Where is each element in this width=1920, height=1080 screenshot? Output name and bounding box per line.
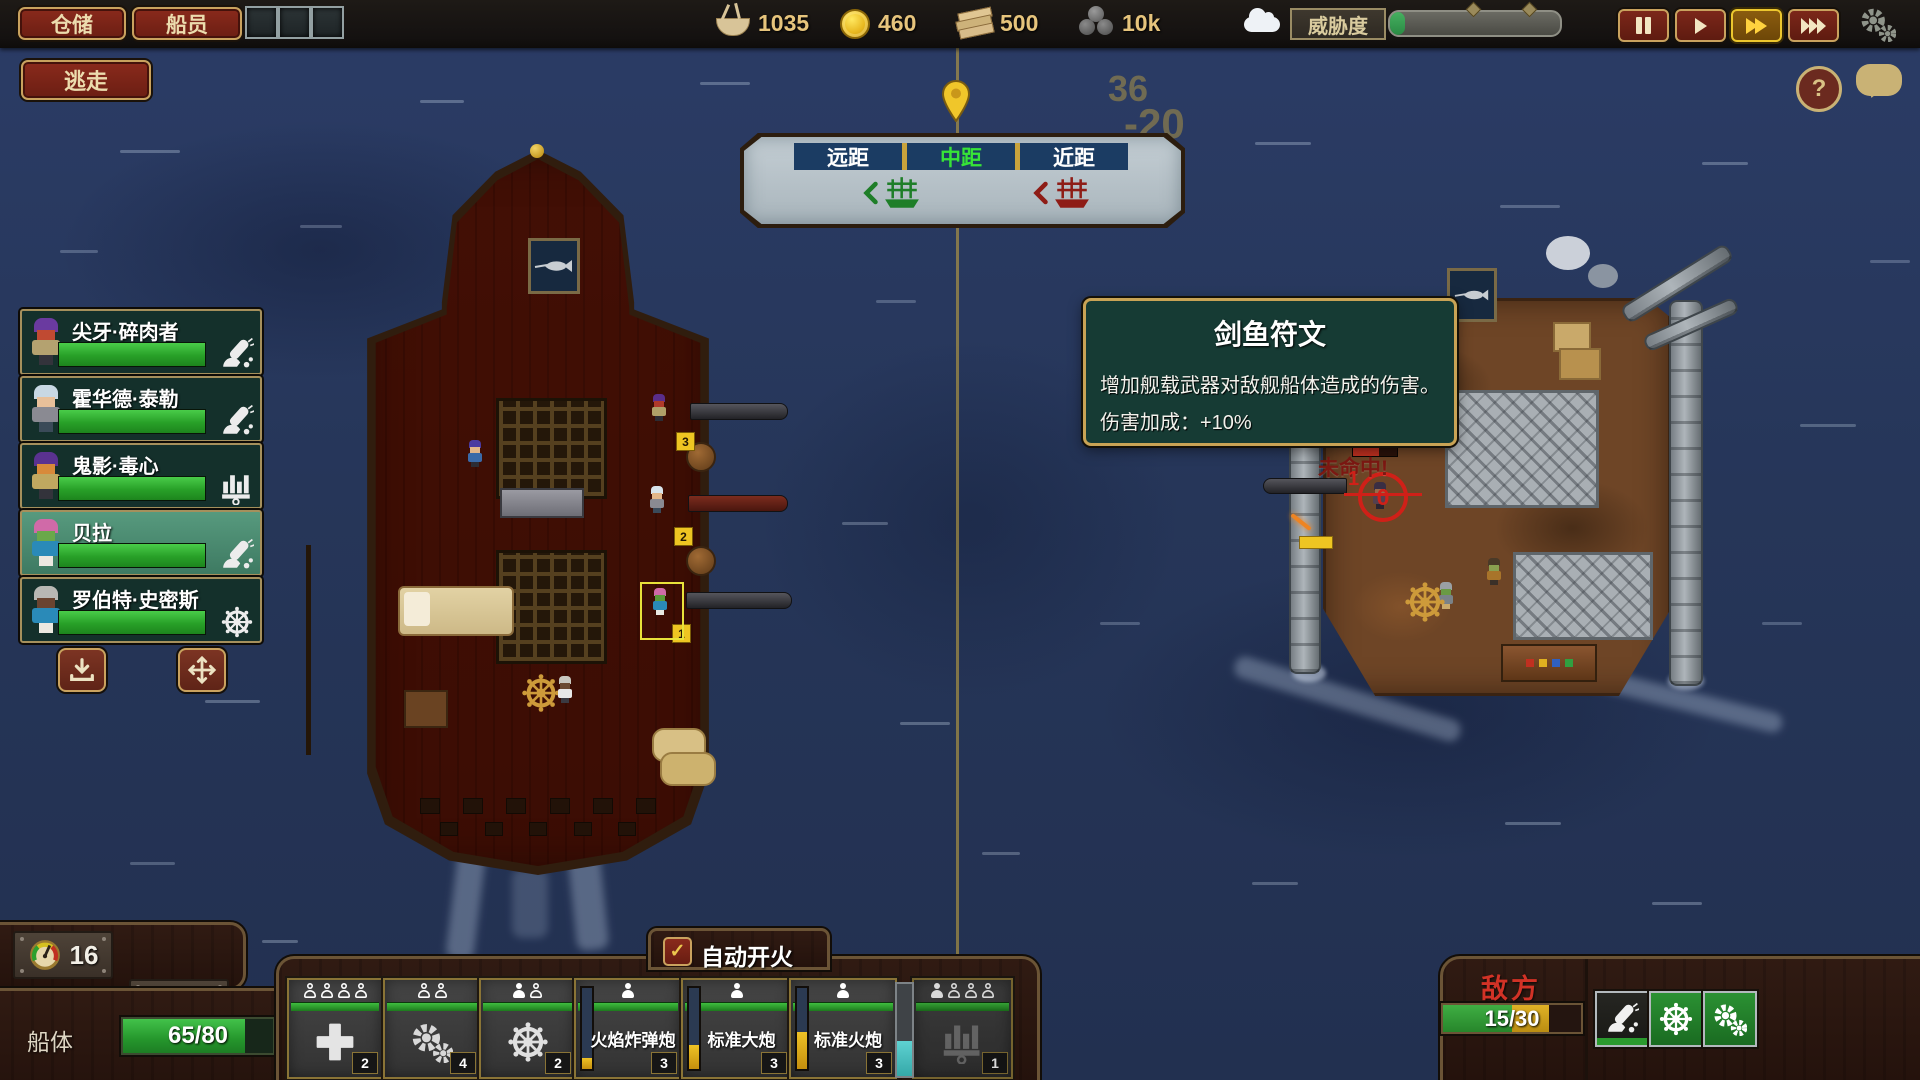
cannon-role-icon: [220, 538, 254, 572]
crew-button[interactable]: 船员: [132, 7, 242, 40]
enemy-hp-bar: 15/30: [1441, 1003, 1583, 1034]
barrel: [686, 546, 716, 576]
crew-empty-icon: [417, 983, 430, 999]
auto-fire-label: 自动开火: [701, 938, 793, 972]
move-crew-button[interactable]: [178, 648, 226, 692]
player-ship-marker: [862, 177, 921, 209]
weather-cloud-icon: [1244, 17, 1280, 32]
bed-pillow: [404, 592, 430, 626]
crew-name: 贝拉: [72, 517, 112, 546]
station-slot-helm[interactable]: 2: [479, 978, 576, 1079]
quick-slot[interactable]: [245, 6, 278, 39]
gears-icon: [411, 1021, 453, 1063]
crew-empty-icon: [434, 983, 447, 999]
crew-card[interactable]: 鬼影·毒心: [20, 443, 262, 509]
settings-gear-icon[interactable]: [1860, 6, 1896, 42]
wave-decoration: [1252, 882, 1298, 885]
wave-decoration: [1702, 162, 1748, 165]
cannon-barrel: [686, 592, 792, 609]
threat-label: 威胁度: [1290, 8, 1386, 40]
sandbag-pile: [660, 752, 716, 786]
enemy-crew-sprite: [1485, 558, 1503, 585]
crew-empty-icon: [948, 983, 961, 999]
weapon-name: 标准火炮: [801, 1026, 895, 1051]
wave-decoration: [120, 150, 180, 153]
enemy-ship-marker: [1032, 177, 1091, 209]
wave-decoration: [1100, 622, 1140, 625]
tooltip-bonus: 伤害加成：+10%: [1100, 406, 1440, 435]
crew-empty-icon: [982, 983, 995, 999]
crew-empty-icon: [320, 983, 333, 999]
crew-label: 船员: [166, 9, 208, 39]
quick-slot[interactable]: [311, 6, 344, 39]
helm-role-icon: [220, 605, 254, 639]
stern-windows: [440, 822, 636, 836]
game-screen: 36 -20: [0, 0, 1920, 1080]
speed-value: 16: [70, 940, 99, 971]
wave-decoration: [700, 82, 750, 85]
panel-divider: [1585, 959, 1588, 1080]
speed-plaque: 16: [13, 931, 113, 979]
station-badge: 3: [651, 1052, 677, 1074]
crew-name: 罗伯特·史密斯: [72, 584, 199, 613]
wave-decoration: [1762, 622, 1802, 625]
weapon-slot-organ-gun-disabled[interactable]: 1: [912, 978, 1013, 1079]
crew-empty-icon: [354, 983, 367, 999]
wave-decoration: [1800, 424, 1856, 427]
crate: [404, 690, 448, 728]
crew-hp-fill: [59, 343, 205, 366]
crew-empty-icon: [303, 983, 316, 999]
enemy-helm-status-icon: [1649, 991, 1703, 1047]
food-chopsticks: [734, 3, 741, 19]
cannon-barrel: [690, 403, 788, 420]
crew-empty-icon: [337, 983, 350, 999]
fastest-forward-button[interactable]: [1788, 9, 1839, 42]
quick-slot[interactable]: [278, 6, 311, 39]
escape-label: 逃走: [64, 64, 108, 96]
auto-fire-tab: ✓ 自动开火: [648, 928, 830, 970]
warehouse-label: 仓储: [51, 9, 93, 39]
range-panel: 远距 中距 近距: [740, 133, 1185, 228]
smoke-puff: [1588, 264, 1618, 288]
queue-number: 1: [1348, 468, 1359, 491]
pause-button[interactable]: [1618, 9, 1669, 42]
help-label: ?: [1812, 75, 1827, 103]
station-badge: 1: [982, 1052, 1008, 1074]
crew-hp-fill: [59, 410, 205, 433]
range-panel-inner: 远距 中距 近距: [744, 137, 1181, 224]
rune-tooltip: 剑鱼符文 增加舰载武器对敌舰船体造成的伤害。 伤害加成：+10%: [1083, 298, 1457, 446]
helm-wheel-icon: [506, 1020, 550, 1064]
metal-plate: [1513, 552, 1653, 640]
crew-filled-icon: [837, 983, 850, 999]
crew-filled-icon: [730, 983, 743, 999]
warehouse-button[interactable]: 仓储: [18, 7, 126, 40]
crew-card[interactable]: 霍华德·泰勒: [20, 376, 262, 442]
cannon-number-tag: 2: [674, 527, 693, 546]
wave-decoration: [842, 522, 888, 525]
far-label: 远距: [827, 142, 869, 172]
near-label: 近距: [1053, 142, 1095, 172]
crew-name: 尖牙·碎肉者: [72, 316, 179, 345]
tab-far-range[interactable]: 远距: [794, 143, 902, 170]
move-icon: [187, 655, 217, 685]
charge-fill: [582, 1058, 592, 1069]
enemy-hp-text: 15/30: [1443, 1005, 1581, 1032]
station-hp-bar: [483, 1002, 572, 1011]
enemy-cannon-status-icon: [1595, 991, 1649, 1047]
crew-name: 霍华德·泰勒: [72, 383, 179, 412]
speed-gauge-icon: [28, 938, 62, 972]
wave-decoration: [60, 250, 98, 253]
threat-fill: [1390, 12, 1405, 35]
enemy-pontoon-right: [1669, 300, 1703, 686]
crate: [1559, 348, 1601, 380]
crew-card-selected[interactable]: 贝拉: [20, 510, 262, 576]
station-badge: 2: [545, 1052, 571, 1074]
ammo-fill: [897, 1041, 912, 1076]
crew-name: 鬼影·毒心: [72, 450, 159, 479]
crew-hp-bar: [58, 409, 206, 434]
wave-decoration: [1870, 260, 1910, 263]
hull-label: 船体: [27, 1023, 73, 1057]
crew-slots: [914, 982, 1011, 1000]
crew-filled-icon: [622, 983, 635, 999]
weapon-slot-standard-cannon[interactable]: 标准火炮 3: [789, 978, 897, 1079]
enemy-ship-wheel: [1403, 580, 1447, 629]
station-hp-bar: [916, 1002, 1009, 1011]
crosshair-value: 0: [1377, 484, 1390, 511]
work-table: [500, 488, 584, 518]
cannon-number-tag: 3: [676, 432, 695, 451]
auto-fire-checkbox[interactable]: ✓: [663, 937, 692, 966]
crew-card[interactable]: 尖牙·碎肉者: [20, 309, 262, 375]
wave-decoration: [300, 225, 342, 228]
crew-hp-fill: [59, 477, 205, 500]
station-badge: 3: [866, 1052, 892, 1074]
hull-panel: 船体 65/80: [0, 988, 316, 1080]
stern-windows: [420, 798, 656, 814]
wave-decoration: [130, 862, 175, 865]
metal-plate: [1445, 390, 1599, 508]
smoke-puff: [1546, 236, 1590, 270]
mid-label: 中距: [940, 142, 982, 172]
crew-filled-icon: [931, 983, 944, 999]
crew-sprite: [648, 486, 666, 513]
ammo-gauge: [895, 982, 914, 1078]
enemy-label: 敌方: [1481, 967, 1541, 1006]
crew-slots: [481, 982, 574, 1000]
crew-sprite: [466, 440, 484, 467]
tooltip-title: 剑鱼符文: [1086, 313, 1454, 353]
ship-wake: [512, 868, 548, 938]
chat-bubble-icon[interactable]: [1856, 64, 1902, 96]
selection-box: [640, 582, 684, 640]
recall-crew-button[interactable]: [58, 648, 106, 692]
wave-decoration: [1255, 142, 1311, 145]
crew-card[interactable]: 罗伯特·史密斯: [20, 577, 262, 643]
threat-label-text: 威胁度: [1308, 10, 1368, 39]
cannon-barrel: [688, 495, 788, 512]
escape-button[interactable]: 逃走: [21, 60, 151, 100]
weapon-slot-standard-big-cannon[interactable]: 标准大炮 3: [681, 978, 792, 1079]
organ-gun-role-icon: [220, 471, 254, 505]
weapon-name: 火焰炸弹炮: [586, 1026, 680, 1051]
crew-slots: [385, 982, 479, 1000]
weapon-name: 标准大炮: [693, 1026, 790, 1051]
wave-decoration: [262, 940, 298, 943]
organ-gun-icon: [941, 1020, 985, 1064]
bow-finial: [530, 144, 544, 158]
swordfish-emblem: [528, 238, 580, 294]
cannon-role-icon: [220, 337, 254, 371]
station-badge: 4: [450, 1052, 476, 1074]
enemy-console: [1501, 644, 1597, 682]
crew-sprite: [556, 676, 574, 703]
crew-empty-icon: [965, 983, 978, 999]
station-slot-engine[interactable]: 4: [383, 978, 481, 1079]
crew-hp-bar: [58, 476, 206, 501]
crew-filled-icon: [513, 983, 526, 999]
top-bar: 仓储 船员 1035 460 500 10k 威胁度: [0, 0, 1920, 48]
wave-decoration: [982, 852, 1020, 855]
weapon-slot-flame-bomb-cannon[interactable]: 火焰炸弹炮 3: [574, 978, 682, 1079]
wave-decoration: [420, 100, 464, 103]
wood-icon: [956, 8, 994, 36]
tab-near-range[interactable]: 近距: [1020, 143, 1128, 170]
enemy-engine-status-icon: [1703, 991, 1757, 1047]
repair-cross-icon: [314, 1021, 356, 1063]
coin-icon: [840, 9, 870, 39]
station-hp-bar: [291, 1002, 379, 1011]
crew-hp-bar: [58, 610, 206, 635]
crew-empty-icon: [530, 983, 543, 999]
ammo-chip: [1299, 536, 1333, 549]
wood-value: 500: [1000, 10, 1038, 37]
cannonball-icon: [1078, 6, 1114, 38]
range-tabs: 远距 中距 近距: [794, 143, 1128, 170]
download-icon: [67, 655, 97, 685]
wave-decoration: [1652, 902, 1702, 905]
cannonball-value: 10k: [1122, 10, 1160, 37]
crew-hp-fill: [59, 611, 205, 634]
fast-forward-button[interactable]: [1731, 9, 1782, 42]
crew-hp-fill: [59, 544, 205, 567]
cargo-hatch: [496, 398, 607, 499]
station-slot-repair[interactable]: 2: [287, 978, 383, 1079]
station-badge: 2: [352, 1052, 378, 1074]
help-button[interactable]: ?: [1796, 66, 1842, 112]
food-bowl-icon: [716, 18, 750, 36]
tab-mid-range[interactable]: 中距: [907, 143, 1015, 170]
tooltip-description: 增加舰载武器对敌舰船体造成的伤害。: [1100, 369, 1440, 398]
hull-value: 65/80: [123, 1019, 273, 1053]
station-hp-bar: [387, 1002, 477, 1011]
rigging-pole: [306, 545, 311, 755]
enemy-panel: 敌方 15/30: [1440, 956, 1920, 1080]
wave-decoration: [876, 300, 916, 303]
crew-hp-bar: [58, 342, 206, 367]
crew-sprite: [650, 394, 668, 421]
cannon-role-icon: [220, 404, 254, 438]
crew-slots: [289, 982, 381, 1000]
gauges-panel: 16 22: [0, 922, 246, 990]
hull-bar: 65/80: [121, 1017, 275, 1055]
wave-decoration: [900, 722, 950, 725]
wave-decoration: [1505, 822, 1561, 825]
range-pin-icon: [942, 80, 970, 122]
play-button[interactable]: [1675, 9, 1726, 42]
wave-decoration: [205, 700, 260, 703]
crew-hp-bar: [58, 543, 206, 568]
food-value: 1035: [758, 10, 809, 37]
station-badge: 3: [761, 1052, 787, 1074]
wave-decoration: [1500, 205, 1560, 208]
gold-value: 460: [878, 10, 916, 37]
